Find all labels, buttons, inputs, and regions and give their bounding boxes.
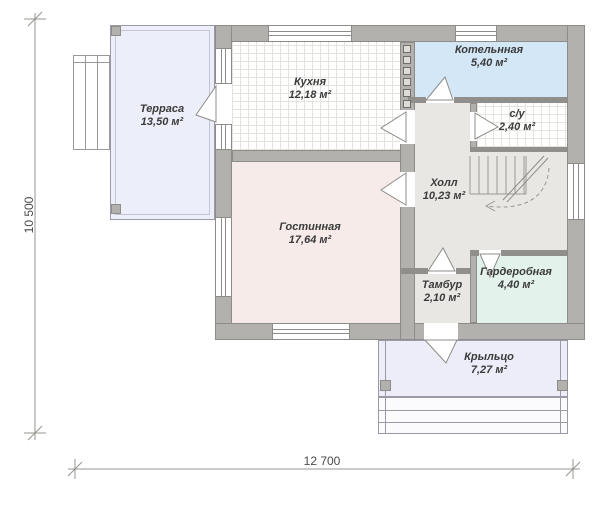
hall-label: Холл 10,23 м² (374, 177, 514, 203)
porch-steps (378, 397, 568, 434)
wall-wc-bottom (470, 147, 567, 152)
kitchen-label: Кухня 12,18 м² (240, 76, 380, 102)
window-boiler-top (455, 25, 497, 42)
room-name: Холл (430, 177, 457, 189)
vent-square (403, 56, 411, 64)
room-area: 10,23 м² (423, 190, 465, 202)
room-area: 2,10 м² (424, 292, 460, 304)
vent-square (403, 100, 411, 108)
terrace-label: Терраса 13,50 м² (92, 103, 232, 129)
window-kitchen-top (268, 25, 352, 42)
vent-square (403, 45, 411, 53)
room-name: Гостинная (279, 221, 340, 233)
vent-square (403, 89, 411, 97)
window-stairs-right (567, 163, 585, 220)
boiler-label: Котельнная 5,40 м² (419, 44, 559, 70)
window-living-left (215, 217, 232, 297)
porch-post (557, 380, 568, 391)
wc-label: с/у 2,40 м² (447, 108, 587, 134)
doorway-wardrobe (479, 250, 501, 256)
porch-label: Крыльцо 7,27 м² (419, 351, 559, 377)
room-area: 13,50 м² (141, 116, 183, 128)
room-area: 7,27 м² (471, 364, 507, 376)
terrace-post (111, 26, 121, 36)
dimension-height-label: 10 500 (22, 175, 36, 255)
wall-kitchen-living (232, 150, 415, 162)
doorway-vestibule-porch (424, 323, 458, 340)
room-area: 2,40 м² (499, 121, 535, 133)
room-name: Котельнная (455, 44, 523, 56)
room-name: Гардеробная (480, 266, 552, 278)
room-area: 17,64 м² (289, 234, 331, 246)
room-name: с/у (509, 108, 524, 120)
room-name: Тамбур (422, 279, 462, 291)
room-name: Крыльцо (464, 351, 514, 363)
vestibule-label: Тамбур 2,10 м² (372, 279, 512, 305)
window-living-bottom (272, 323, 350, 340)
window-kitchen-left-1 (215, 48, 232, 84)
terrace-post (111, 204, 121, 214)
room-name: Терраса (140, 103, 184, 115)
room-area: 5,40 м² (471, 57, 507, 69)
vent-square (403, 67, 411, 75)
floor-plan: Терраса 13,50 м² Кухня 12,18 м² Котельнн… (0, 0, 600, 506)
vent-square (403, 78, 411, 86)
dimension-width-label: 12 700 (282, 454, 362, 468)
doorway-kitchen-hall (400, 110, 415, 144)
doorway-boiler (426, 97, 454, 103)
porch-post (380, 380, 391, 391)
living-label: Гостинная 17,64 м² (240, 221, 380, 247)
room-name: Кухня (294, 76, 326, 88)
room-area: 12,18 м² (289, 89, 331, 101)
